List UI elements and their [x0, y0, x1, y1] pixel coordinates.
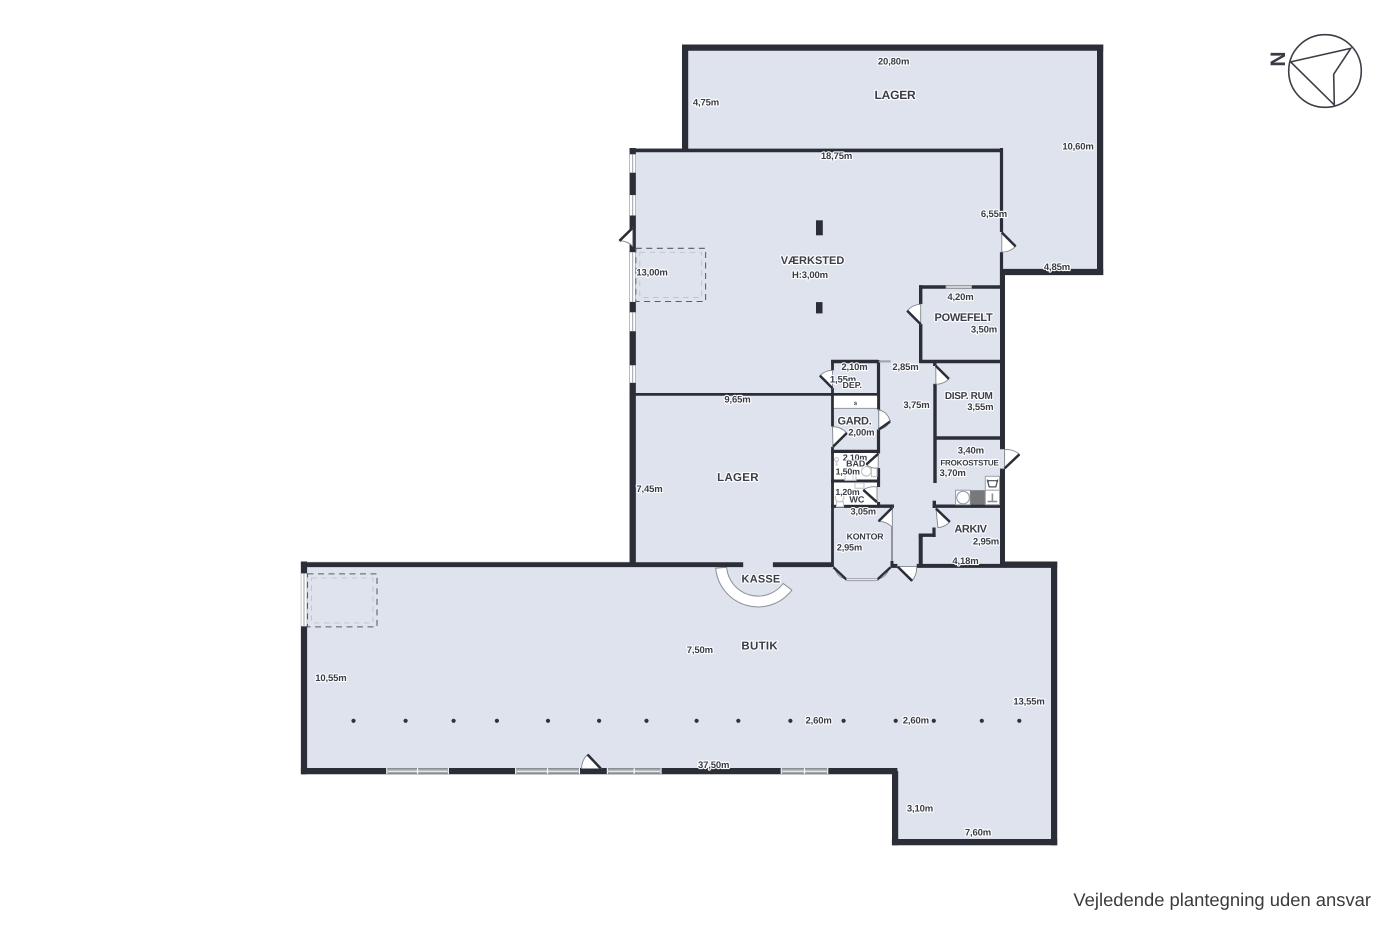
svg-text:18,75m: 18,75m	[821, 151, 852, 162]
svg-text:3,40m: 3,40m	[958, 446, 984, 457]
svg-text:BUTIK: BUTIK	[741, 641, 778, 653]
svg-text:3,55m: 3,55m	[967, 402, 993, 413]
svg-text:4,20m: 4,20m	[947, 292, 973, 303]
svg-text:7,45m: 7,45m	[636, 484, 662, 495]
svg-text:2,10m: 2,10m	[841, 362, 867, 373]
svg-text:20,80m: 20,80m	[878, 56, 909, 67]
svg-text:POWEFELT: POWEFELT	[935, 312, 993, 324]
svg-text:2,85m: 2,85m	[892, 362, 918, 373]
svg-text:3,10m: 3,10m	[907, 803, 933, 814]
svg-text:H:3,00m: H:3,00m	[792, 270, 828, 281]
svg-text:10,55m: 10,55m	[315, 673, 346, 684]
svg-text:3,50m: 3,50m	[971, 324, 997, 335]
svg-text:KASSE: KASSE	[742, 574, 781, 586]
svg-text:3,05m: 3,05m	[851, 506, 876, 516]
svg-text:7,60m: 7,60m	[965, 827, 991, 838]
svg-text:s: s	[854, 400, 858, 407]
svg-text:DEP.: DEP.	[842, 380, 861, 390]
svg-text:DISP. RUM: DISP. RUM	[945, 391, 993, 402]
svg-text:2,00m: 2,00m	[848, 428, 874, 439]
svg-text:2,60m: 2,60m	[806, 715, 832, 726]
svg-text:3,70m: 3,70m	[940, 468, 966, 479]
svg-text:2,95m: 2,95m	[837, 543, 862, 553]
svg-text:3,75m: 3,75m	[903, 400, 929, 411]
svg-text:WC: WC	[849, 495, 864, 505]
svg-text:LAGER: LAGER	[874, 88, 916, 102]
svg-text:6,55m: 6,55m	[981, 209, 1007, 220]
svg-text:N: N	[1267, 51, 1290, 66]
svg-text:37,50m: 37,50m	[698, 760, 729, 771]
svg-text:4,85m: 4,85m	[1044, 262, 1070, 273]
svg-text:2,95m: 2,95m	[973, 537, 999, 548]
svg-text:LAGER: LAGER	[717, 472, 759, 484]
svg-text:BAD: BAD	[846, 458, 865, 468]
svg-text:KONTOR: KONTOR	[847, 532, 885, 542]
svg-text:9,65m: 9,65m	[724, 395, 750, 406]
svg-text:4,75m: 4,75m	[693, 98, 719, 109]
svg-text:GARD.: GARD.	[838, 416, 872, 428]
svg-text:7,50m: 7,50m	[687, 645, 713, 656]
svg-text:10,60m: 10,60m	[1062, 142, 1093, 153]
svg-text:2,60m: 2,60m	[903, 715, 929, 726]
svg-text:VÆRKSTED: VÆRKSTED	[781, 255, 845, 267]
svg-text:Vejledende plantegning uden an: Vejledende plantegning uden ansvar	[1073, 889, 1371, 910]
svg-text:FROKOSTSTUE: FROKOSTSTUE	[940, 459, 999, 468]
svg-text:13,00m: 13,00m	[636, 268, 667, 279]
svg-text:4,18m: 4,18m	[952, 556, 978, 567]
svg-text:13,55m: 13,55m	[1013, 697, 1044, 708]
svg-text:ARKIV: ARKIV	[954, 524, 987, 536]
